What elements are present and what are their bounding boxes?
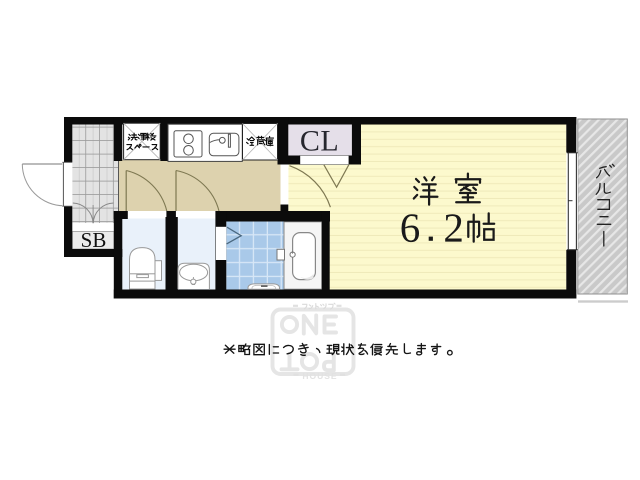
svg-text:2: 2 xyxy=(443,204,464,250)
svg-text:CL: CL xyxy=(300,125,339,158)
svg-text:HOUSE: HOUSE xyxy=(302,371,337,381)
svg-text:6: 6 xyxy=(400,204,421,250)
svg-text:SB: SB xyxy=(81,228,107,252)
